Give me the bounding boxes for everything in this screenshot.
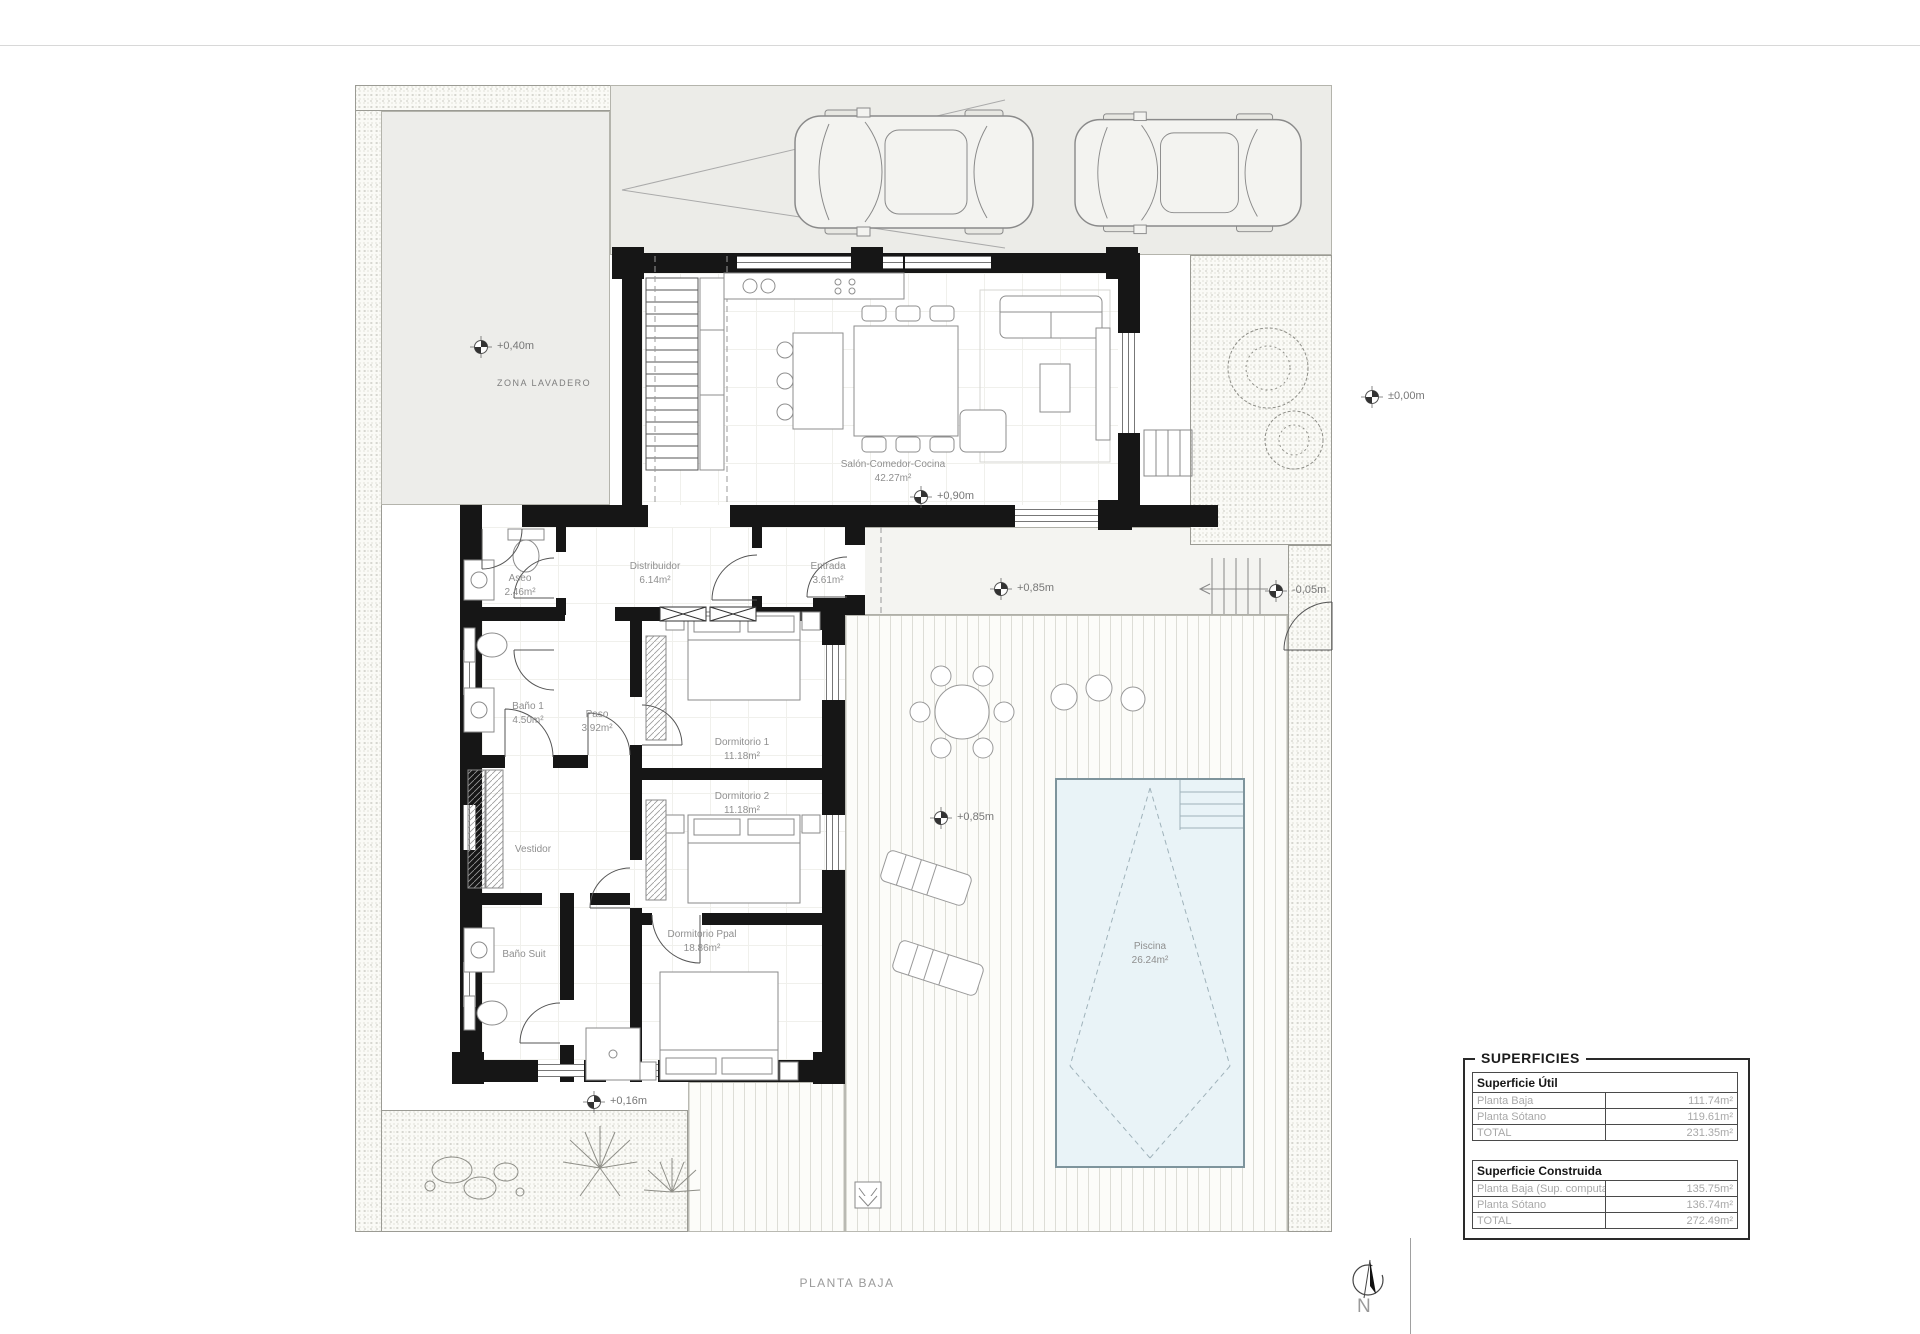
- wall-segment: [1118, 273, 1140, 333]
- wall-segment: [642, 768, 822, 780]
- level-label: ±0,00m: [1388, 390, 1425, 402]
- table-row-value: 135.75m²: [1605, 1181, 1738, 1197]
- laundry-yard: [381, 111, 610, 505]
- level-label: +0,90m: [937, 490, 974, 502]
- room-label-dormitorio-ppal: Dormitorio Ppal18.86m²: [668, 928, 737, 956]
- window: [905, 256, 991, 269]
- pillar: [452, 1052, 484, 1084]
- window: [606, 1064, 658, 1077]
- gravel-band-west: [355, 85, 382, 1232]
- wall-segment: [630, 908, 642, 1082]
- wall-segment: [556, 527, 566, 552]
- window: [538, 1064, 584, 1077]
- table-row-value: 272.49m²: [1605, 1213, 1738, 1229]
- wall-segment: [822, 870, 845, 1082]
- wall-segment: [584, 1060, 606, 1082]
- wall-segment: [622, 505, 648, 527]
- window: [463, 962, 476, 1007]
- wall-segment: [630, 745, 642, 860]
- pillar: [851, 247, 883, 279]
- swimming-pool: [1055, 778, 1245, 1168]
- floor-plan-sheet: ZONA LAVADERO Salón-Comedor-Cocina42.27m…: [0, 0, 1920, 1334]
- wall-segment: [522, 505, 622, 527]
- timber-deck-south: [688, 1082, 845, 1232]
- wall-segment: [822, 607, 845, 645]
- garden-south: [381, 1110, 688, 1232]
- carport-area: [610, 85, 1332, 255]
- table-row-label: TOTAL: [1473, 1213, 1606, 1229]
- window: [826, 815, 839, 870]
- wall-segment: [590, 893, 630, 905]
- titleblock-divider: [1410, 1238, 1411, 1334]
- wall-segment: [553, 755, 588, 768]
- table-row-value: 231.35m²: [1605, 1125, 1738, 1141]
- wall-segment: [1118, 433, 1140, 505]
- zone-label-lavadero: ZONA LAVADERO: [497, 378, 591, 388]
- wall-segment: [845, 595, 865, 615]
- table-row-value: 111.74m²: [1605, 1093, 1738, 1109]
- table-row-value: 119.61m²: [1605, 1109, 1738, 1125]
- north-arrow-icon: [1353, 1260, 1383, 1298]
- window: [1122, 333, 1135, 433]
- wall-segment: [702, 913, 822, 925]
- superficie-construida-table: Superficie Construida Planta Baja (Sup. …: [1472, 1160, 1738, 1229]
- room-label-paso: Paso3.92m²: [581, 708, 612, 736]
- wall-segment: [630, 607, 642, 697]
- table-row-label: Planta Baja: [1473, 1093, 1606, 1109]
- room-label-dormitorio2: Dormitorio 211.18m²: [715, 790, 769, 818]
- wall-segment: [845, 527, 865, 545]
- level-label: +0,40m: [497, 340, 534, 352]
- gravel-band-east: [1288, 545, 1332, 1232]
- gravel-band-north: [355, 85, 617, 111]
- room-label-dormitorio1: Dormitorio 111.18m²: [715, 736, 769, 764]
- level-label: +0,85m: [1017, 582, 1054, 594]
- table-row-label: Planta Sótano: [1473, 1197, 1606, 1213]
- wall-segment: [822, 700, 845, 815]
- room-label-aseo: Aseo2.46m²: [504, 572, 535, 600]
- table-row-label: Planta Baja (Sup. computable): [1473, 1181, 1606, 1197]
- table-header: Superficie Construida: [1473, 1161, 1738, 1181]
- level-label: -0,05m: [1292, 584, 1326, 596]
- north-label: N: [1357, 1296, 1371, 1318]
- window: [463, 650, 476, 695]
- wall-segment: [560, 893, 574, 1000]
- superficies-table: SUPERFICIES Superficie Útil Planta Baja …: [1463, 1058, 1750, 1240]
- wall-segment: [1132, 505, 1218, 527]
- wall-segment: [730, 505, 1015, 527]
- wall-segment: [482, 607, 565, 621]
- window: [826, 645, 839, 700]
- sliding-door-window: [1015, 509, 1103, 522]
- wall-segment: [482, 755, 505, 768]
- gravel-area-east: [1190, 255, 1332, 545]
- drawing-title: PLANTA BAJA: [757, 1276, 937, 1290]
- sheet-top-rule: [0, 45, 1920, 46]
- room-label-salon: Salón-Comedor-Cocina42.27m²: [841, 458, 946, 486]
- wall-segment: [482, 893, 542, 905]
- pillar: [1098, 500, 1132, 530]
- room-label-vestidor: Vestidor: [515, 843, 551, 857]
- superficies-title: SUPERFICIES: [1475, 1050, 1586, 1066]
- wall-segment: [752, 527, 762, 548]
- wall-segment: [622, 273, 642, 505]
- room-label-bano1: Baño 14.50m²: [512, 700, 544, 728]
- superficie-util-table: Superficie Útil Planta Baja 111.74m² Pla…: [1472, 1072, 1738, 1141]
- wall-segment: [482, 1060, 538, 1082]
- window: [463, 805, 476, 850]
- room-label-distribuidor: Distribuidor6.14m²: [630, 560, 681, 588]
- table-row-value: 136.74m²: [1605, 1197, 1738, 1213]
- room-label-entrada: Entrada3.61m²: [810, 560, 845, 588]
- wall-segment: [642, 913, 652, 925]
- level-label: +0,16m: [610, 1095, 647, 1107]
- table-row-label: TOTAL: [1473, 1125, 1606, 1141]
- room-label-bano-suit: Baño Suit: [502, 948, 545, 962]
- table-header: Superficie Útil: [1473, 1073, 1738, 1093]
- level-label: +0,85m: [957, 811, 994, 823]
- room-label-piscina: Piscina26.24m²: [1132, 940, 1169, 968]
- table-row-label: Planta Sótano: [1473, 1109, 1606, 1125]
